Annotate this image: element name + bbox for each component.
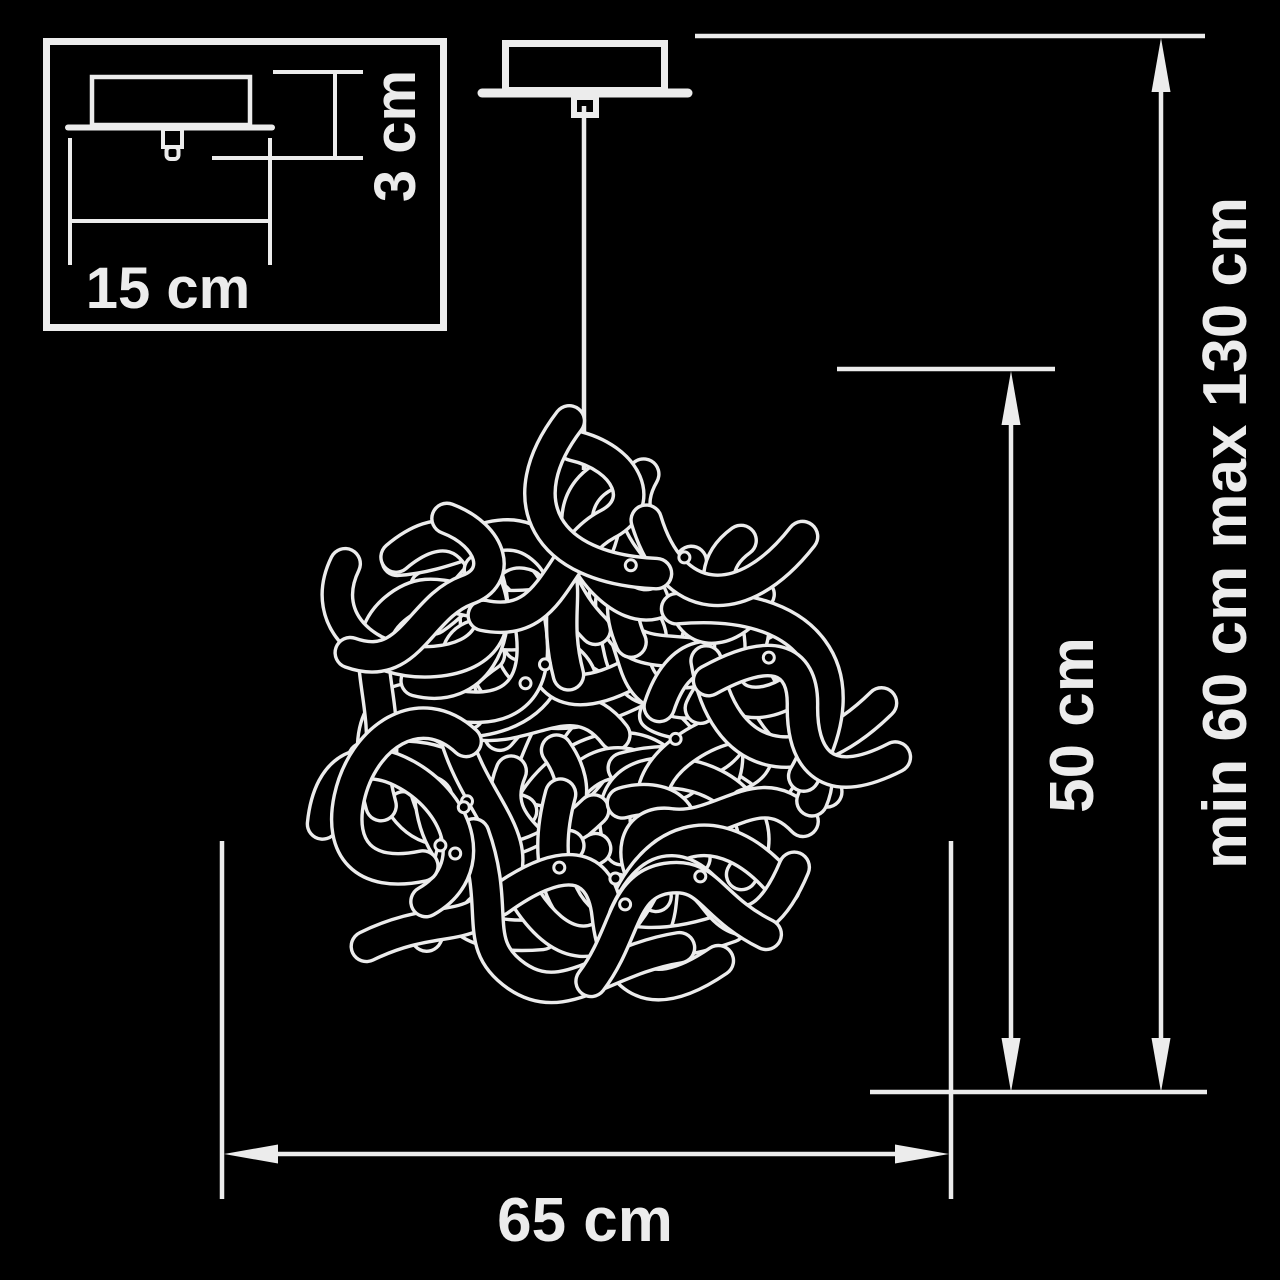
inset-canopy-box — [92, 77, 250, 125]
rivet-dot — [450, 848, 461, 859]
inset-connector-tip — [167, 147, 179, 159]
rivet-dot — [763, 652, 774, 663]
label-suspension-range: min 60 cm max 130 cm — [1195, 197, 1257, 869]
rivet-dot — [625, 560, 636, 571]
rivet-dot — [435, 840, 446, 851]
rivet-dot — [695, 871, 706, 882]
rivet-dot — [610, 873, 621, 884]
label-canopy-height: 3 cm — [367, 70, 425, 202]
rivet-dot — [554, 862, 565, 873]
arrow-left-icon — [224, 1145, 278, 1164]
rivet-dot — [670, 733, 681, 744]
label-canopy-width: 15 cm — [86, 260, 250, 318]
arrow-right-icon — [895, 1145, 949, 1164]
chandelier-illustration — [309, 414, 906, 1041]
arrow-down-icon — [1002, 1038, 1021, 1092]
label-shade-height: 50 cm — [1042, 637, 1104, 813]
ceiling-mount — [482, 44, 688, 471]
dimension-diagram: 15 cm 3 cm 50 cm min 60 cm max 130 cm 65… — [0, 0, 1280, 1280]
rivet-dot — [540, 659, 551, 670]
rivet-dot — [679, 552, 690, 563]
arrow-up-icon — [1152, 38, 1171, 92]
arrow-up-icon — [1002, 371, 1021, 425]
rivet-dot — [520, 678, 531, 689]
arrow-down-icon — [1152, 1038, 1171, 1092]
mount-canopy-box — [506, 44, 665, 91]
rivet-dot — [620, 899, 631, 910]
inset-connector — [163, 129, 182, 147]
rivet-dot — [458, 802, 469, 813]
label-shade-width: 65 cm — [497, 1190, 673, 1252]
